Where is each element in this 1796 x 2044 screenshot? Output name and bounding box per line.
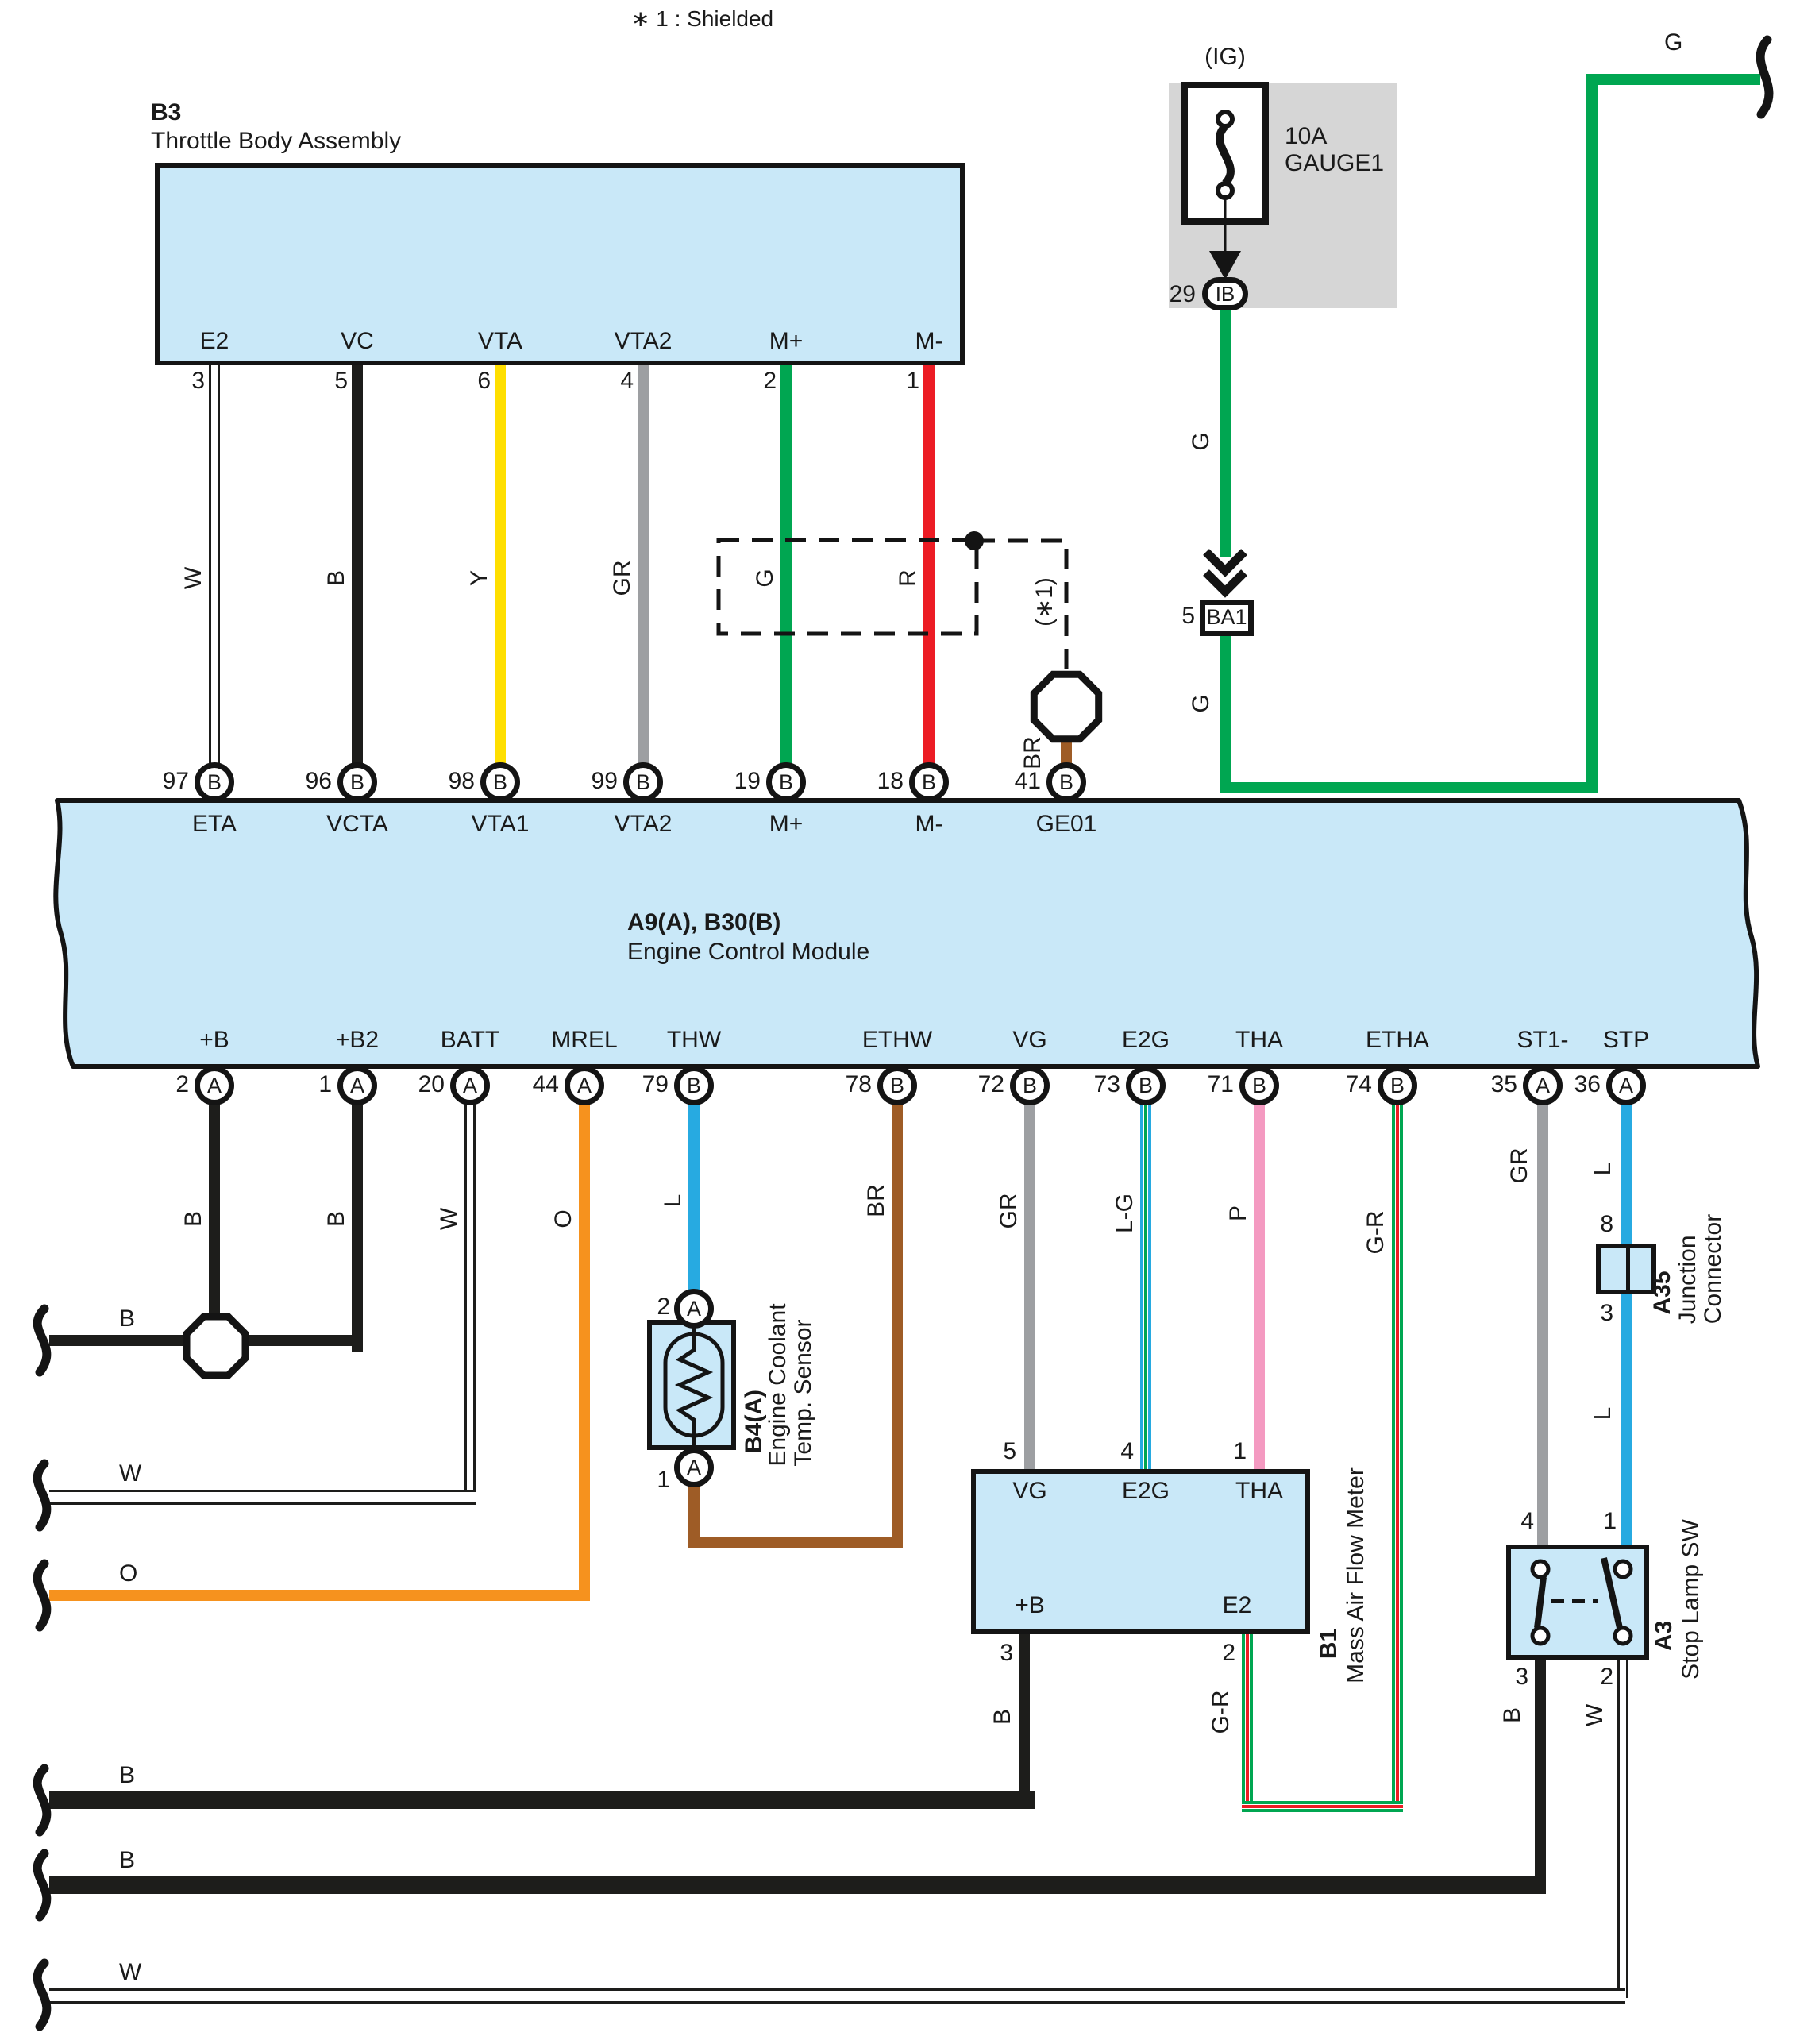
ecm-pin-circle: B [1378, 1066, 1417, 1105]
pin-connector: B [779, 770, 793, 794]
throttle-pin-label: M+ [769, 329, 804, 354]
ecm-pin-number: 41 [1006, 769, 1041, 794]
wire-code: P [1226, 1205, 1251, 1221]
ecm-code: A9(A), B30(B) [627, 910, 780, 935]
wire-code: G [753, 569, 778, 587]
ecm-pin-label: MREL [551, 1028, 617, 1053]
wire-code: B [324, 1211, 349, 1227]
ecm-pin-circle: A [450, 1066, 490, 1105]
ecm-pin-label: STP [1603, 1028, 1649, 1053]
ecm-pin-label: ETA [192, 812, 237, 837]
sensor-pin-number: 2 [635, 1294, 670, 1320]
fuse-source: (IG) [1204, 44, 1246, 70]
shield-ground-octagon [1034, 674, 1098, 739]
bus-code: B [119, 1763, 135, 1788]
bus-code: B [119, 1848, 135, 1873]
junction-name-line1: Junction [1675, 1214, 1701, 1324]
ecm-pin-number: 96 [297, 769, 332, 794]
ba1-connector: BA1 [1200, 600, 1254, 636]
stop-lamp-switch-contacts [1532, 1558, 1631, 1644]
ecm-pin-number: 44 [524, 1072, 559, 1097]
junction-name: Junction Connector [1675, 1214, 1726, 1324]
stoplamp-pin-number: 3 [1493, 1664, 1528, 1690]
wire-code: O [551, 1209, 576, 1228]
ecm-pin-number: 35 [1482, 1072, 1517, 1097]
pin-connector: A [577, 1074, 592, 1097]
sensor-name-line1: Engine Coolant [765, 1303, 791, 1466]
ecm-pin-number: 19 [726, 769, 761, 794]
ecm-pin-circle: B [195, 762, 234, 802]
maf-pin-number: 5 [981, 1439, 1016, 1464]
ecm-pin-number: 98 [440, 769, 475, 794]
fuse-pin-number: 29 [1161, 282, 1196, 307]
wire-code: GR [610, 561, 635, 596]
ba1-number: 5 [1160, 604, 1195, 629]
pin-connector: A [687, 1297, 701, 1321]
junction-name-line2: Connector [1701, 1214, 1726, 1324]
maf-code: B1 [1316, 1629, 1342, 1659]
ecm-pin-circle: B [766, 762, 806, 802]
stoplamp-pin-number: 2 [1578, 1664, 1613, 1690]
bus-code: O [119, 1561, 137, 1587]
ecm-title: Engine Control Module [627, 939, 869, 965]
throttle-pin-label: E2 [200, 329, 229, 354]
ecm-pin-circle: B [1010, 1066, 1050, 1105]
fuse-name: GAUGE1 [1285, 151, 1384, 176]
maf-pin-label: VG [1012, 1479, 1046, 1504]
ecm-pin-label: GE01 [1036, 812, 1097, 837]
throttle-pin-number: 4 [599, 368, 634, 394]
ecm-pin-circle: A [195, 1066, 234, 1105]
ecm-pin-label: VCTA [326, 812, 388, 837]
ecm-pin-circle: B [909, 762, 949, 802]
sensor-code: B4(A) [742, 1390, 767, 1453]
sensor-name-line2: Temp. Sensor [791, 1303, 816, 1466]
sensor-pin-circle: A [674, 1448, 714, 1487]
ba1-label: BA1 [1206, 605, 1247, 629]
ecm-pin-label: M- [915, 812, 943, 837]
ecm-pin-number: 36 [1566, 1072, 1601, 1097]
ecm-pin-circle: B [1239, 1066, 1279, 1105]
ecm-pin-number: 71 [1199, 1072, 1234, 1097]
ecm-pin-label: VG [1012, 1028, 1046, 1053]
ecm-pin-circle: B [623, 762, 663, 802]
fuse-symbol [1209, 112, 1241, 280]
ecm-pin-number: 20 [410, 1072, 445, 1097]
throttle-pin-number: 6 [456, 368, 491, 394]
wire-code: BR [1020, 736, 1046, 769]
ecm-pin-circle: B [1126, 1066, 1166, 1105]
pin-connector: B [1252, 1074, 1266, 1097]
sensor-pin-circle: A [674, 1289, 714, 1329]
shield-ref: (∗1) [1032, 577, 1058, 627]
wire-code: W [1582, 1704, 1608, 1726]
pin-connector: B [1059, 770, 1073, 794]
green-wire-chevron-arrow [1206, 552, 1244, 592]
ecm-pin-number: 78 [837, 1072, 872, 1097]
pin-connector: A [350, 1074, 364, 1097]
ecm-pin-circle: B [480, 762, 520, 802]
pin-connector: B [636, 770, 650, 794]
wire-code: G-R [1208, 1691, 1234, 1734]
throttle-pin-number: 2 [742, 368, 777, 394]
wire-code: G [1189, 432, 1214, 450]
bus-code: B [119, 1306, 135, 1332]
symbol-overlay [0, 0, 1796, 2044]
ecm-pin-circle: A [1606, 1066, 1646, 1105]
pin-connector: B [687, 1074, 701, 1097]
coolant-sensor-resistor [665, 1310, 723, 1466]
maf-title: Mass Air Flow Meter [1343, 1467, 1369, 1683]
ecm-pin-label: BATT [441, 1028, 499, 1053]
ecm-pin-circle: A [565, 1066, 604, 1105]
ecm-pin-circle: A [337, 1066, 377, 1105]
wire-code: GR [1507, 1148, 1532, 1184]
stoplamp-title: Stop Lamp SW [1678, 1519, 1704, 1680]
ecm-pin-circle: B [877, 1066, 917, 1105]
sensor-name: Engine Coolant Temp. Sensor [765, 1303, 816, 1466]
stoplamp-pin-number: 1 [1582, 1509, 1617, 1534]
bus-code: W [119, 1461, 141, 1487]
wire-code: B [324, 570, 349, 586]
sensor-pin-number: 1 [635, 1467, 670, 1493]
throttle-pin-number: 3 [170, 368, 205, 394]
ecm-pin-label: VTA1 [472, 812, 530, 837]
ecm-pin-label: VTA2 [615, 812, 673, 837]
wire-code: BR [864, 1184, 889, 1217]
maf-pin-number: 3 [978, 1641, 1013, 1666]
ecm-pin-number: 74 [1337, 1072, 1372, 1097]
fuse-pin-ib: IB [1202, 277, 1248, 310]
wire-code: G [1664, 30, 1682, 56]
shield-dashed-box [719, 531, 1066, 672]
throttle-pin-number: 1 [885, 368, 919, 394]
wire-code: Y [467, 570, 492, 586]
ecm-pin-number: 18 [869, 769, 904, 794]
pin-connector: B [1139, 1074, 1153, 1097]
throttle-pin-number: 5 [313, 368, 348, 394]
wire-code: L [1590, 1163, 1616, 1176]
throttle-title: Throttle Body Assembly [151, 129, 401, 154]
stoplamp-pin-number: 4 [1499, 1509, 1534, 1534]
ecm-pin-label: THA [1235, 1028, 1283, 1053]
maf-pin-number: 1 [1212, 1439, 1247, 1464]
throttle-pin-label: VTA [478, 329, 522, 354]
maf-pin-label: E2G [1122, 1479, 1170, 1504]
throttle-pin-label: VC [341, 329, 374, 354]
throttle-pin-label: M- [915, 329, 943, 354]
ecm-pin-number: 79 [634, 1072, 669, 1097]
wire-code: G-R [1363, 1211, 1389, 1255]
maf-pin-label: E2 [1223, 1593, 1252, 1618]
ecm-pin-number: 97 [154, 769, 189, 794]
pin-connector: A [463, 1074, 477, 1097]
ecm-pin-number: 72 [969, 1072, 1004, 1097]
pin-connector: B [890, 1074, 904, 1097]
pin-connector: B [207, 770, 222, 794]
ecm-pin-circle: B [1046, 762, 1086, 802]
pin-connector: A [687, 1456, 701, 1479]
wiring-diagram: ∗ 1 : Shielded B3 Throttle Body Assembly… [0, 0, 1796, 2044]
ecm-pin-number: 73 [1085, 1072, 1120, 1097]
throttle-pin-label: VTA2 [615, 329, 673, 354]
ecm-pin-number: 1 [297, 1072, 332, 1097]
ecm-pin-label: M+ [769, 812, 804, 837]
pin-connector: A [207, 1074, 222, 1097]
wire-code: B [990, 1709, 1016, 1725]
maf-pin-label: THA [1235, 1479, 1283, 1504]
ecm-pin-circle: B [337, 762, 377, 802]
ecm-pin-number: 99 [583, 769, 618, 794]
ecm-pin-label: E2G [1122, 1028, 1170, 1053]
wire-code: L [661, 1194, 686, 1208]
ecm-pin-label: +B [199, 1028, 229, 1053]
splice-octagon [187, 1317, 245, 1375]
fuse-rating: 10A [1285, 124, 1327, 149]
wire-code: L [1590, 1407, 1616, 1421]
wire-code: GR [996, 1194, 1022, 1229]
wire-code: W [437, 1208, 462, 1230]
pin-connector: B [350, 770, 364, 794]
ecm-pin-label: +B2 [336, 1028, 379, 1053]
ecm-pin-circle: A [1523, 1066, 1563, 1105]
junction-pin-number: 8 [1578, 1212, 1613, 1237]
stoplamp-code: A3 [1651, 1621, 1677, 1651]
pin-connector: B [1390, 1074, 1405, 1097]
pin-connector: B [493, 770, 507, 794]
maf-pin-number: 2 [1201, 1641, 1235, 1666]
pin-connector: A [1536, 1074, 1550, 1097]
wire-code: R [896, 569, 921, 587]
pin-connector: A [1619, 1074, 1633, 1097]
ecm-pin-number: 2 [154, 1072, 189, 1097]
wire-code: G [1189, 694, 1214, 712]
bus-code: W [119, 1960, 141, 1985]
throttle-code: B3 [151, 100, 181, 125]
shielded-note: ∗ 1 : Shielded [631, 6, 773, 32]
maf-pin-label: +B [1015, 1593, 1045, 1618]
ecm-pin-circle: B [674, 1066, 714, 1105]
maf-pin-number: 4 [1099, 1439, 1134, 1464]
wire-code: B [181, 1211, 206, 1227]
ecm-pin-label: ETHW [862, 1028, 932, 1053]
wire-code: B [1500, 1707, 1525, 1723]
junction-code: A35 [1650, 1271, 1675, 1314]
fuse-pin-label: IB [1216, 282, 1235, 306]
pin-connector: B [922, 770, 936, 794]
wire-code: W [181, 567, 206, 589]
ecm-pin-label: ETHA [1366, 1028, 1429, 1053]
junction-pin-number: 3 [1578, 1301, 1613, 1326]
ecm-pin-label: THW [667, 1028, 721, 1053]
ecm-pin-label: ST1- [1517, 1028, 1568, 1053]
pin-connector: B [1023, 1074, 1037, 1097]
wire-code: L-G [1112, 1194, 1138, 1233]
